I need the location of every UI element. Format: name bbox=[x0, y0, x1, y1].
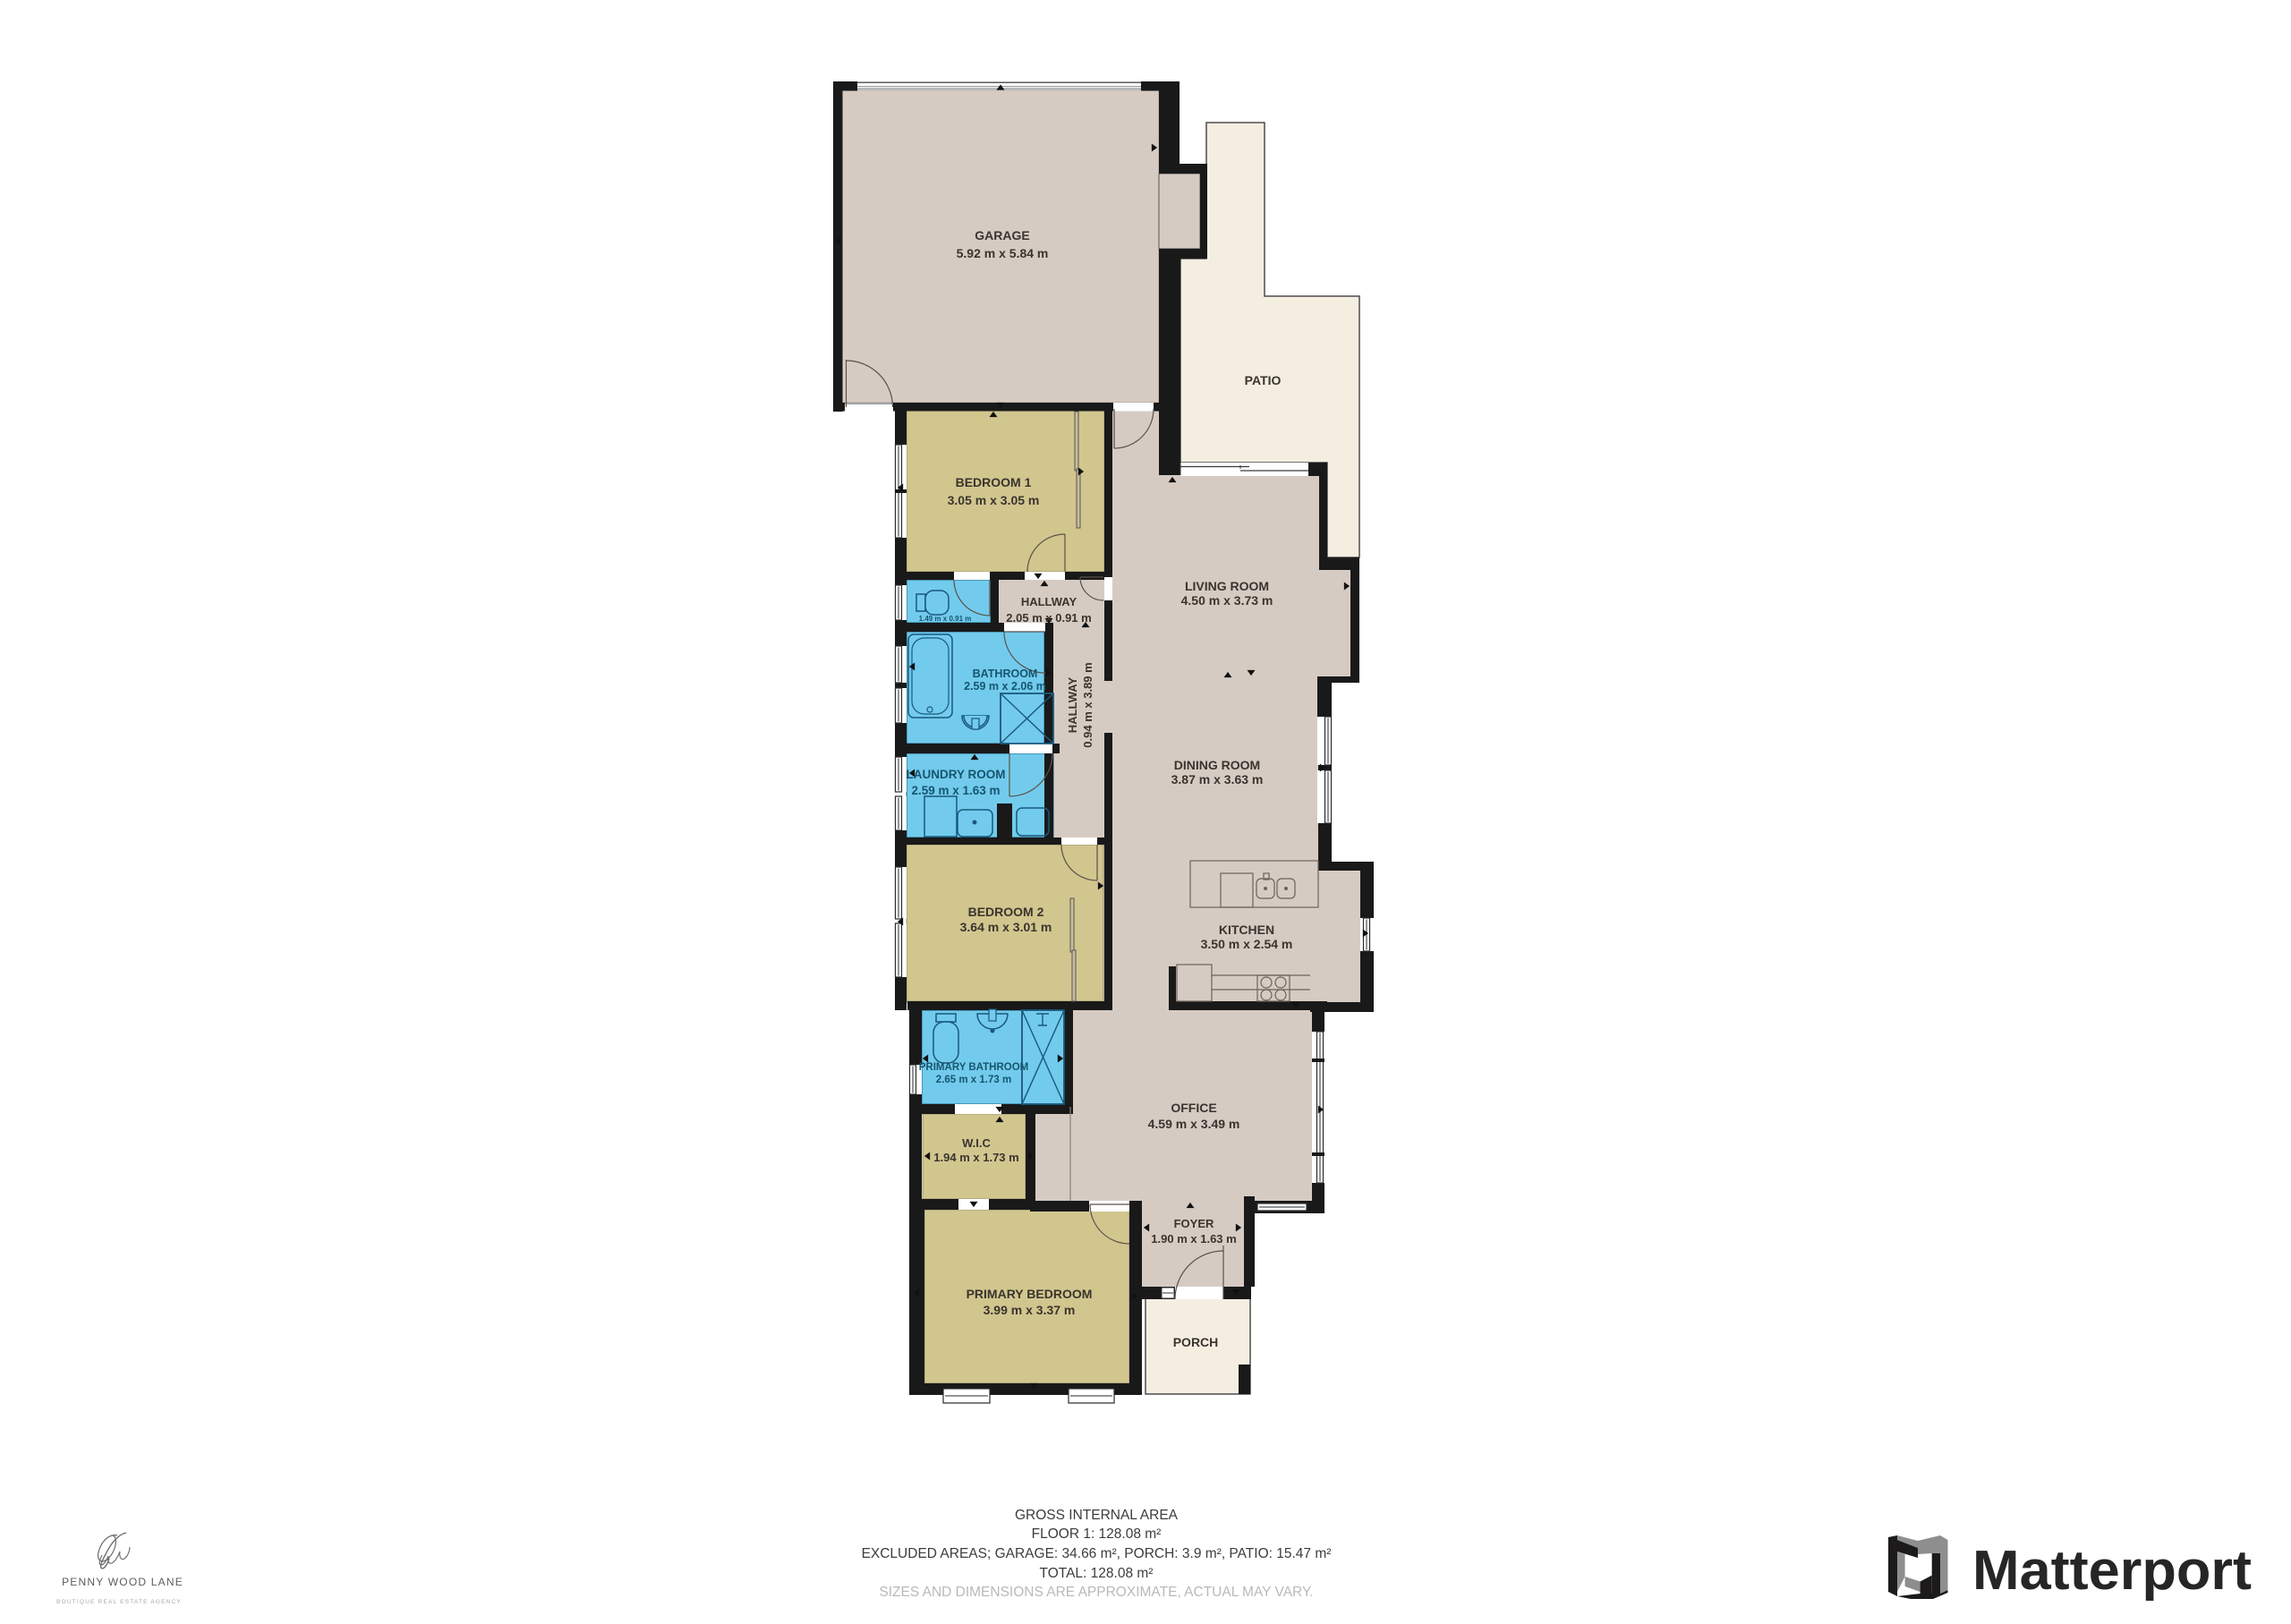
svg-text:Matterport: Matterport bbox=[1972, 1540, 2252, 1602]
svg-text:3.50 m x 2.54 m: 3.50 m x 2.54 m bbox=[1201, 937, 1293, 951]
svg-text:1.94 m x 1.73 m: 1.94 m x 1.73 m bbox=[933, 1151, 1018, 1164]
svg-text:5.92 m x 5.84 m: 5.92 m x 5.84 m bbox=[957, 246, 1049, 260]
svg-text:PORCH: PORCH bbox=[1173, 1335, 1219, 1349]
svg-text:3.64 m x 3.01 m: 3.64 m x 3.01 m bbox=[960, 920, 1052, 934]
svg-text:OFFICE: OFFICE bbox=[1171, 1101, 1216, 1115]
svg-text:FLOOR 1: 128.08 m²: FLOOR 1: 128.08 m² bbox=[1032, 1526, 1162, 1542]
svg-text:BATHROOM: BATHROOM bbox=[973, 667, 1038, 680]
svg-text:1.90 m x 1.63 m: 1.90 m x 1.63 m bbox=[1151, 1232, 1236, 1246]
svg-text:DINING ROOM: DINING ROOM bbox=[1174, 758, 1260, 772]
svg-text:0.94 m x 3.89 m: 0.94 m x 3.89 m bbox=[1081, 662, 1094, 747]
svg-text:FOYER: FOYER bbox=[1174, 1217, 1214, 1230]
svg-text:BEDROOM 2: BEDROOM 2 bbox=[968, 905, 1044, 919]
svg-text:PATIO: PATIO bbox=[1245, 373, 1282, 387]
svg-text:BEDROOM 1: BEDROOM 1 bbox=[956, 475, 1032, 489]
svg-text:W.I.C: W.I.C bbox=[962, 1136, 991, 1150]
svg-text:4.59 m x 3.49 m: 4.59 m x 3.49 m bbox=[1148, 1117, 1240, 1131]
svg-text:HALLWAY: HALLWAY bbox=[1021, 595, 1077, 608]
svg-text:TOTAL: 128.08 m²: TOTAL: 128.08 m² bbox=[1040, 1566, 1154, 1581]
svg-text:GARAGE: GARAGE bbox=[975, 228, 1029, 242]
svg-text:3.05 m x 3.05 m: 3.05 m x 3.05 m bbox=[948, 493, 1040, 507]
svg-text:HALLWAY: HALLWAY bbox=[1066, 676, 1079, 733]
svg-text:3.87 m x 3.63 m: 3.87 m x 3.63 m bbox=[1171, 772, 1264, 786]
svg-text:EXCLUDED AREAS; GARAGE: 34.66: EXCLUDED AREAS; GARAGE: 34.66 m², PORCH:… bbox=[862, 1546, 1332, 1561]
svg-text:4.50 m x 3.73 m: 4.50 m x 3.73 m bbox=[1181, 593, 1273, 608]
svg-text:PENNY WOOD LANE: PENNY WOOD LANE bbox=[62, 1576, 183, 1588]
svg-text:2.59 m x 2.06 m: 2.59 m x 2.06 m bbox=[964, 680, 1046, 693]
svg-text:KITCHEN: KITCHEN bbox=[1219, 923, 1274, 937]
svg-text:SIZES AND DIMENSIONS ARE APPRO: SIZES AND DIMENSIONS ARE APPROXIMATE, AC… bbox=[879, 1585, 1313, 1600]
svg-text:LIVING ROOM: LIVING ROOM bbox=[1185, 579, 1269, 593]
svg-text:1.49 m x 0.91 m: 1.49 m x 0.91 m bbox=[919, 615, 972, 623]
svg-text:3.99 m x 3.37 m: 3.99 m x 3.37 m bbox=[984, 1303, 1076, 1317]
svg-text:GROSS INTERNAL AREA: GROSS INTERNAL AREA bbox=[1015, 1508, 1179, 1523]
svg-text:2.65 m x 1.73 m: 2.65 m x 1.73 m bbox=[936, 1075, 1011, 1085]
svg-text:2.59 m x 1.63 m: 2.59 m x 1.63 m bbox=[911, 784, 1000, 797]
svg-text:LAUNDRY ROOM: LAUNDRY ROOM bbox=[907, 768, 1006, 781]
svg-text:BOUTIQUE REAL ESTATE AGENCY: BOUTIQUE REAL ESTATE AGENCY bbox=[56, 1599, 182, 1605]
svg-text:PRIMARY BEDROOM: PRIMARY BEDROOM bbox=[967, 1287, 1093, 1301]
svg-text:2.05 m x 0.91 m: 2.05 m x 0.91 m bbox=[1006, 611, 1091, 625]
svg-text:PRIMARY BATHROOM: PRIMARY BATHROOM bbox=[919, 1062, 1028, 1073]
